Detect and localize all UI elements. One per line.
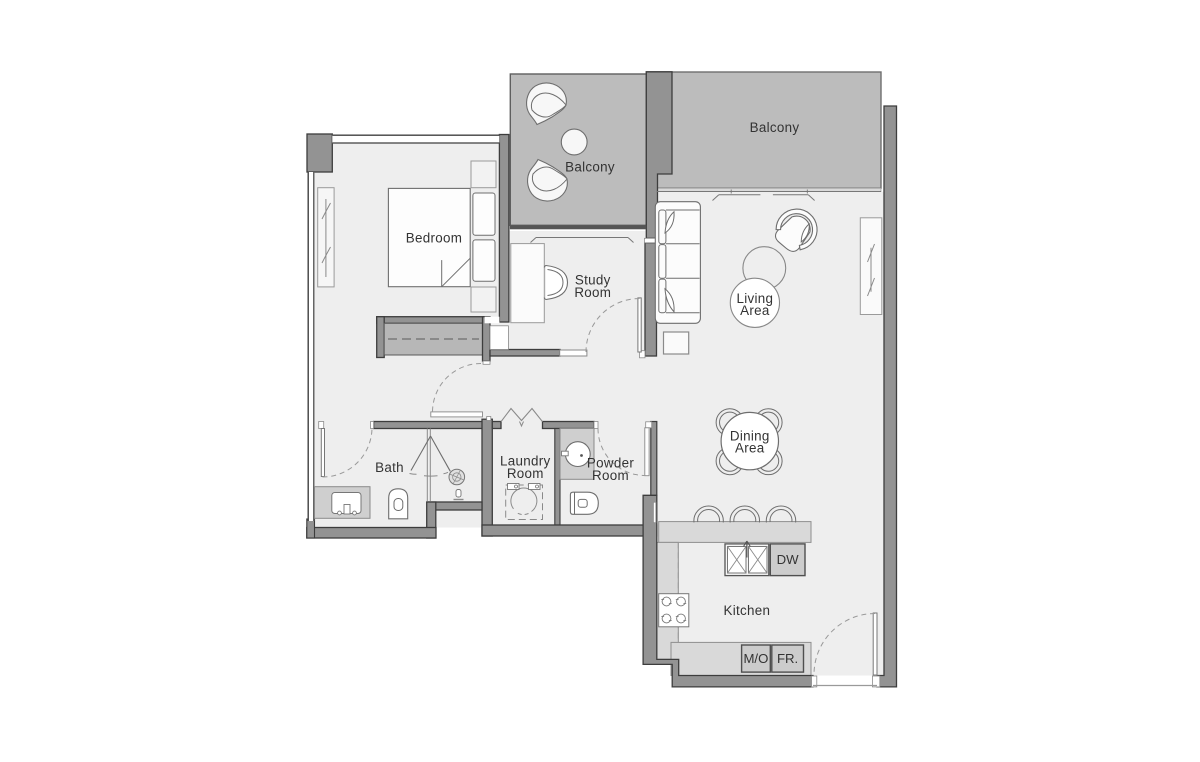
svg-text:DW: DW [777, 552, 800, 567]
svg-text:Room: Room [574, 285, 611, 300]
svg-text:FR.: FR. [777, 651, 798, 666]
svg-text:M/O: M/O [743, 651, 768, 666]
svg-text:Room: Room [507, 466, 544, 481]
svg-text:Balcony: Balcony [565, 159, 615, 174]
svg-text:Area: Area [740, 303, 770, 318]
svg-text:Kitchen: Kitchen [724, 603, 771, 618]
svg-text:Bedroom: Bedroom [406, 231, 462, 246]
svg-text:Room: Room [592, 468, 629, 483]
svg-text:Balcony: Balcony [750, 120, 800, 135]
svg-text:Area: Area [735, 441, 765, 456]
svg-text:Bath: Bath [375, 460, 404, 475]
